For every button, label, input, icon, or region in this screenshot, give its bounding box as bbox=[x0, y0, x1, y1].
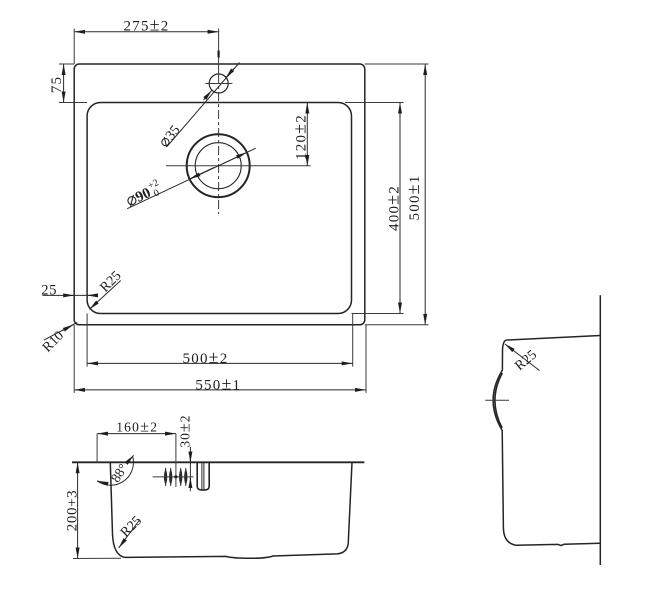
svg-text:160±2: 160±2 bbox=[116, 417, 158, 435]
svg-text:75: 75 bbox=[49, 76, 65, 93]
svg-text:200+3: 200+3 bbox=[64, 490, 80, 531]
svg-text:25: 25 bbox=[41, 283, 57, 299]
svg-text:30±2: 30±2 bbox=[176, 414, 194, 447]
